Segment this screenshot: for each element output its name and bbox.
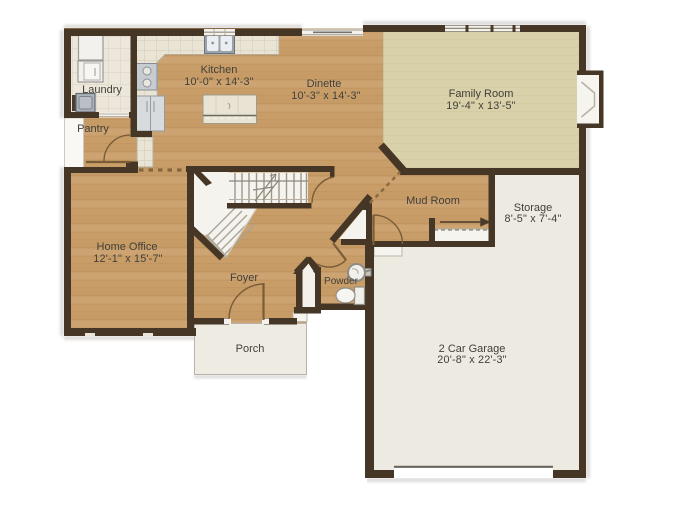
svg-text:Pantry: Pantry bbox=[77, 123, 109, 135]
svg-text:12'-1" x 15'-7": 12'-1" x 15'-7" bbox=[93, 253, 162, 265]
svg-text:Family Room: Family Room bbox=[449, 88, 514, 100]
svg-text:Dinette: Dinette bbox=[307, 78, 342, 90]
svg-text:Foyer: Foyer bbox=[230, 272, 258, 284]
svg-text:Porch: Porch bbox=[236, 343, 265, 355]
svg-text:Kitchen: Kitchen bbox=[201, 64, 238, 76]
svg-text:Mud Room: Mud Room bbox=[406, 195, 460, 207]
svg-text:Powder: Powder bbox=[324, 276, 359, 287]
svg-text:20'-8" x 22'-3": 20'-8" x 22'-3" bbox=[437, 354, 506, 366]
svg-text:19'-4" x 13'-5": 19'-4" x 13'-5" bbox=[446, 100, 515, 112]
svg-text:8'-5" x 7'-4": 8'-5" x 7'-4" bbox=[505, 213, 562, 225]
svg-text:10'-3" x 14'-3": 10'-3" x 14'-3" bbox=[291, 90, 360, 102]
svg-text:Home Office: Home Office bbox=[97, 241, 158, 253]
svg-text:10'-0" x 14'-3": 10'-0" x 14'-3" bbox=[184, 76, 253, 88]
svg-text:Laundry: Laundry bbox=[82, 84, 122, 96]
